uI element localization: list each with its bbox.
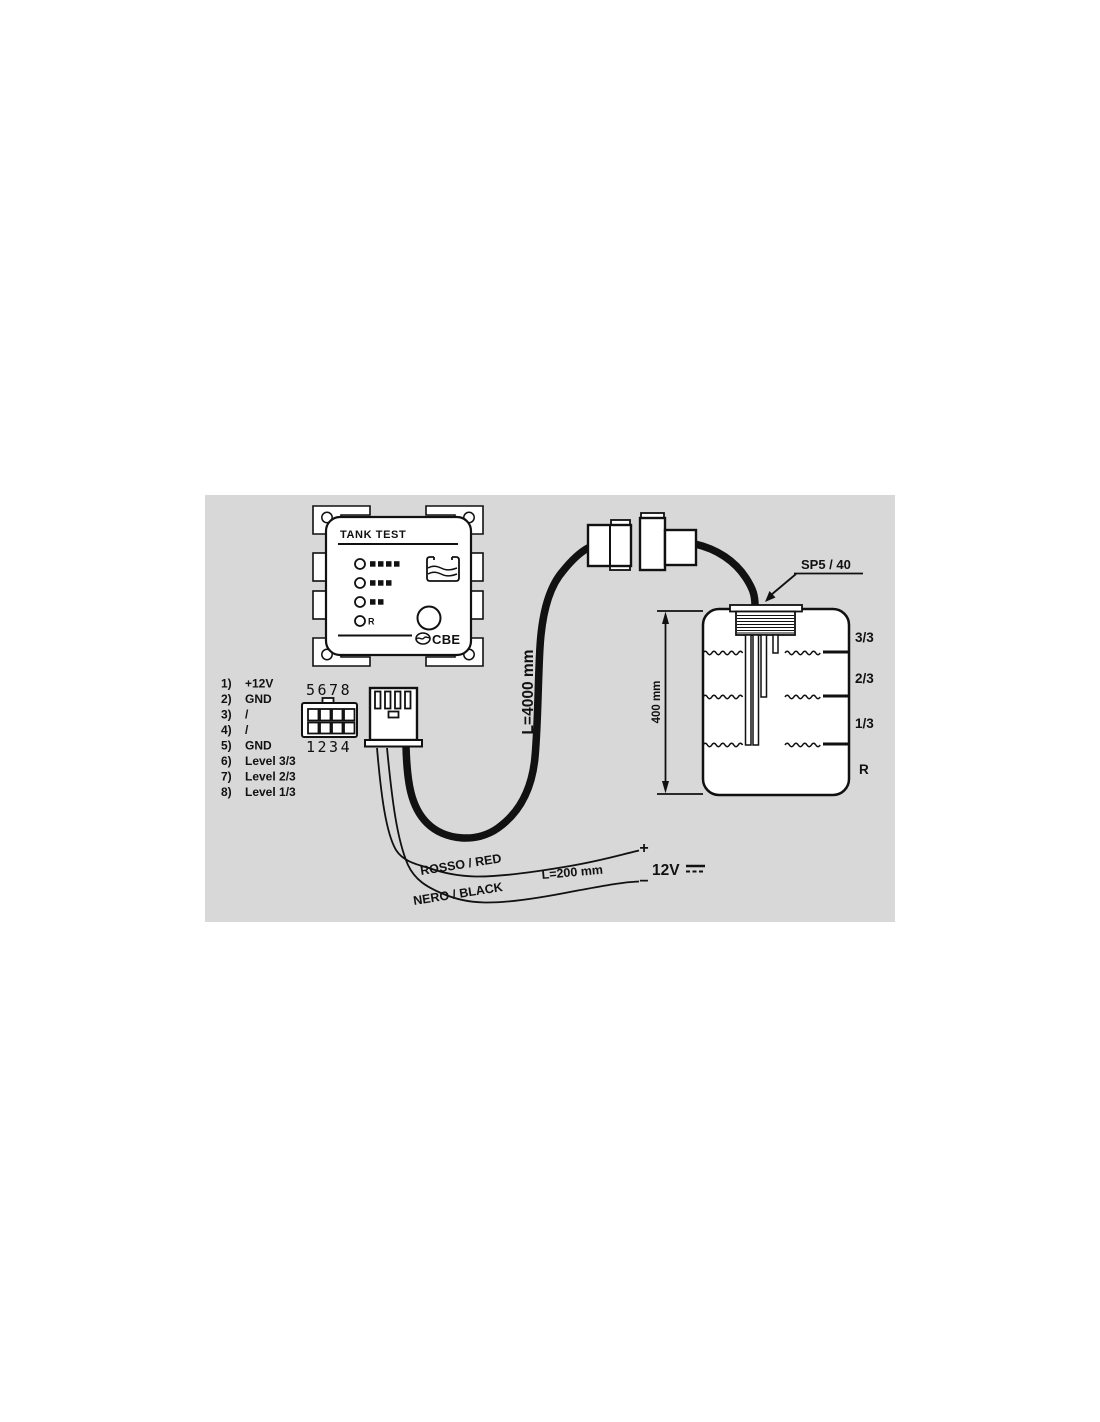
panel-title: TANK TEST [340,529,406,541]
connector-pins-bottom-label: 1234 [306,738,352,756]
dimension-arrow-down-icon [662,781,669,794]
power-wire-length-label: L=200 mm [541,863,603,882]
pin-num: 4) [221,723,232,737]
dimension-arrow-up-icon [662,612,669,625]
pin-label: / [245,708,249,722]
level-label-reserve: R [859,762,869,777]
connector-pin-cells [308,709,355,734]
level-label-3-3: 3/3 [855,630,874,645]
probe-flange [730,605,802,612]
diagram-background: TANK TEST R [205,495,895,922]
pin-label: GND [245,739,272,753]
pin-label: Level 1/3 [245,785,296,799]
pin-num: 6) [221,754,232,768]
led-bars-3 [370,580,392,586]
pin-list: 1) +12V 2) GND 3) / 4) / 5) GND 6) Level… [221,677,296,800]
cbe-logo-text: CBE [432,632,460,647]
rear-connector-base [365,740,422,747]
rear-connector-slot [395,692,401,709]
pin-label: Level 2/3 [245,770,296,784]
panel-rear-connector [365,688,422,747]
led-2-3-icon [355,578,365,588]
level-label-2-3: 2/3 [855,671,874,686]
connector-8pin: 5678 1234 [302,681,357,756]
cable-length-label: L=4000 mm [520,650,537,735]
power-wiring: ROSSO / RED NERO / BLACK L=200 mm + − 12… [377,748,705,908]
pin-label: / [245,723,249,737]
probe-label: SP5 / 40 [801,557,851,572]
frame-tab-left-lower [313,591,326,619]
led-1-3-icon [355,597,365,607]
probe-head [736,612,795,636]
tank-height-dimension: 400 mm [651,611,703,794]
pin-label: Level 3/3 [245,754,296,768]
inline-plug-body [640,518,665,570]
minus-terminal-label: − [639,873,648,890]
wiring-diagram: TANK TEST R [205,495,895,922]
page: { "colors": { "diagram_background": "#d8… [0,0,1100,1422]
test-button[interactable] [418,607,441,630]
inline-plug-nose [665,530,696,565]
led-reserve-label: R [368,617,375,627]
pin-num: 1) [221,677,232,691]
pin-num: 2) [221,692,232,706]
led-3-3-icon [355,559,365,569]
plus-terminal-label: + [639,840,648,857]
pin-label: +12V [245,677,273,691]
red-wire-label: ROSSO / RED [419,851,502,878]
main-cable-probe-side [695,544,755,606]
pin-num: 7) [221,770,232,784]
led-reserve-icon [355,616,365,626]
dc-symbol-icon [686,866,705,872]
rear-connector-slot [385,692,391,709]
rear-connector-key [389,712,399,718]
pin-num: 8) [221,785,232,799]
level-label-1-3: 1/3 [855,716,874,731]
voltage-label: 12V [652,862,680,879]
tank: 3/3 2/3 1/3 R [703,605,874,795]
inline-connector-pair [588,513,696,570]
tank-test-panel: TANK TEST R [326,517,471,655]
tank-height-label: 400 mm [651,681,663,724]
frame-tab-left-upper [313,553,326,581]
connector-pins-top-label: 5678 [306,681,352,699]
probe-callout: SP5 / 40 [765,557,863,602]
rear-connector-slot [375,692,381,709]
rear-connector-slot [405,692,411,709]
pin-label: GND [245,692,272,706]
pin-num: 3) [221,708,232,722]
pin-num: 5) [221,739,232,753]
